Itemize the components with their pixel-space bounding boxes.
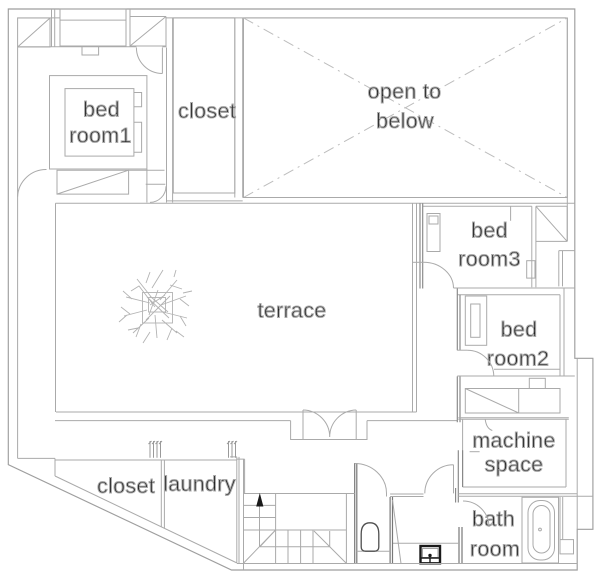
svg-text:bed: bed: [501, 318, 538, 342]
svg-text:closet: closet: [178, 99, 236, 123]
svg-text:room2: room2: [487, 347, 549, 371]
svg-text:space: space: [485, 453, 544, 477]
svg-text:terrace: terrace: [257, 299, 326, 323]
svg-text:room: room: [470, 537, 520, 561]
svg-text:laundry: laundry: [163, 472, 236, 496]
svg-text:bed: bed: [83, 98, 120, 122]
svg-text:closet: closet: [97, 474, 155, 498]
svg-text:below: below: [376, 109, 434, 133]
svg-text:bath: bath: [472, 507, 515, 531]
svg-text:room3: room3: [458, 247, 520, 271]
svg-text:room1: room1: [69, 124, 131, 148]
svg-text:machine: machine: [472, 429, 555, 453]
svg-text:bed: bed: [471, 219, 508, 243]
svg-text:open to: open to: [368, 80, 442, 104]
